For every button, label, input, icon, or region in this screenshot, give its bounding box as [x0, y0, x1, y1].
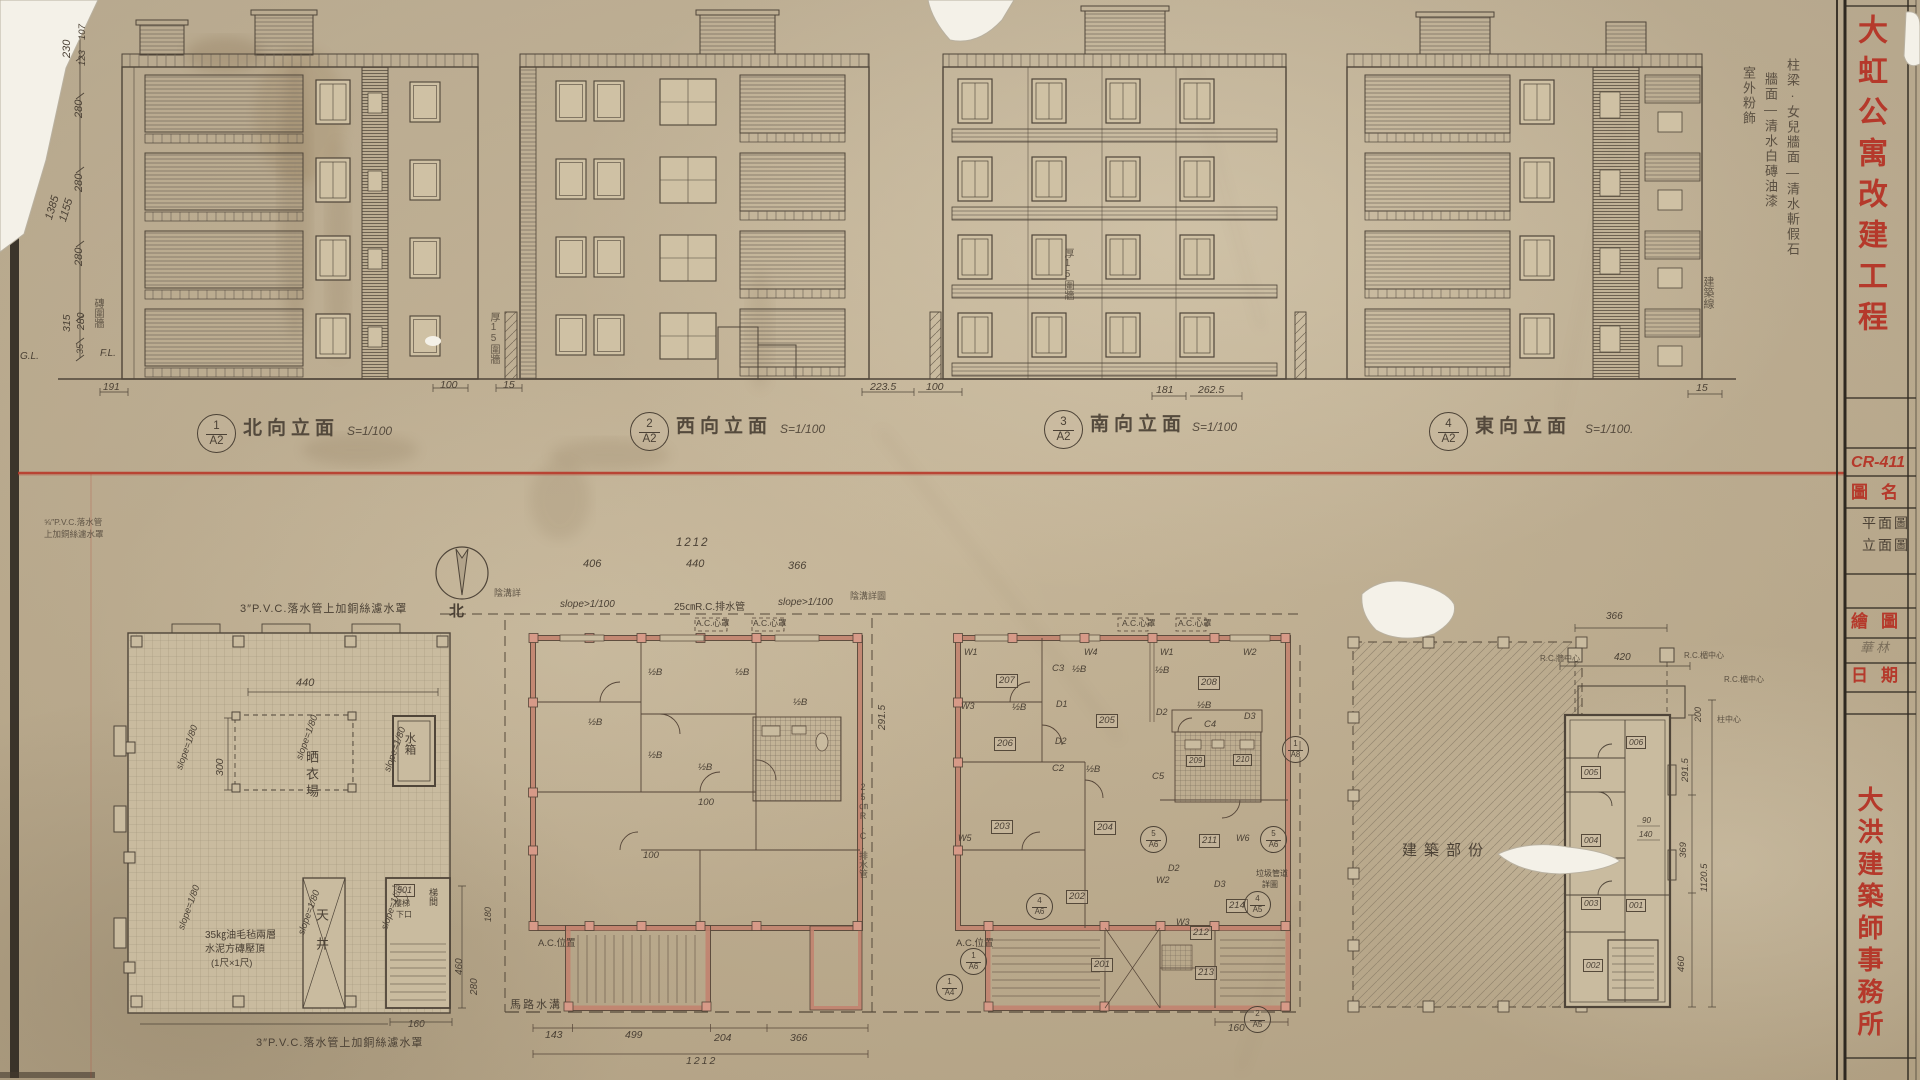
planB-halfb-4: ½B	[793, 698, 807, 708]
roof-pvc-note-top: 3″P.V.C.落水管上加銅絲濾水罩	[240, 604, 407, 615]
section-5A6b-sheet: A6	[1266, 840, 1282, 849]
planE-dim-369: 369	[1679, 842, 1689, 858]
planC-w1-a: W1	[964, 648, 978, 657]
planB-dim-1212: 1212	[676, 538, 710, 550]
roof-dim-160: 160	[408, 1020, 425, 1030]
planE-lintel-center-2: R.C.楣中心	[1724, 676, 1764, 684]
planC-halfb-1: ½B	[1072, 665, 1086, 675]
planE-dim-2915: 291.5	[1681, 758, 1691, 782]
elevation-3-bubble: 3 A2	[1044, 410, 1083, 449]
planE-dim-366: 366	[1606, 612, 1623, 622]
roof-dim-300: 300	[215, 758, 226, 776]
elevation-2-sheet: A2	[639, 432, 659, 445]
dim-123: 123	[78, 50, 88, 66]
brick-wall-note: 磚圍牆	[92, 298, 102, 328]
planB-slope-note-2: slope>1/100	[778, 598, 833, 608]
section-5A6-no: 5	[1151, 830, 1155, 838]
room-003: 003	[1581, 897, 1601, 910]
room-002: 002	[1583, 959, 1603, 972]
planC-halfb-5: ½B	[1086, 765, 1100, 775]
planB-gutter-note: 陰溝詳圖	[850, 592, 886, 601]
planC-ac-hood-1: A.C.心罩	[1122, 619, 1156, 628]
north-arrow	[436, 547, 488, 599]
elevation-east	[1347, 12, 1702, 379]
section-4A6-no: 4	[1037, 897, 1041, 905]
planC-w4: W4	[1084, 648, 1098, 657]
roof-dim-180: 180	[484, 907, 493, 922]
room-005: 005	[1581, 766, 1601, 779]
planC-w6: W6	[1236, 834, 1250, 843]
planB-ac-hood-1: A.C.心罩	[696, 619, 730, 628]
section-4A6-bubble: 4 A6	[1026, 893, 1053, 920]
roof-membrane-note-3: (1尺×1尺)	[211, 959, 252, 969]
planB-dim-204: 204	[714, 1033, 732, 1044]
roof-stairroom-label: 梯間	[428, 888, 437, 906]
planC-d2-b: D2	[1055, 737, 1067, 746]
room-208: 208	[1198, 676, 1220, 690]
section-1A8-sheet: A8	[1288, 750, 1304, 759]
roof-pvc-small-2: 上加銅絲濾水罩	[44, 530, 104, 539]
roof-stair-label-1: 樓梯	[394, 900, 410, 908]
room-206: 206	[994, 737, 1016, 751]
section-4A5-sheet: A5	[1250, 905, 1266, 914]
dim-2235: 223.5	[870, 382, 896, 393]
dim-230: 230	[62, 40, 73, 58]
dim-35: 35	[76, 344, 85, 354]
elevation-4-scale: S=1/100.	[1585, 423, 1633, 435]
finish-note-col2: 牆面—清水白磚油漆	[1764, 72, 1777, 209]
section-2A5-sheet: A5	[1250, 1020, 1266, 1029]
planB-halfb-2: ½B	[735, 668, 749, 678]
elevation-2-bubble: 2 A2	[630, 412, 669, 451]
building-line-note: 建築線	[1702, 276, 1713, 309]
drawing-linework	[0, 0, 1920, 1080]
dim-2625: 262.5	[1198, 385, 1224, 396]
dim-280-2: 280	[74, 174, 85, 192]
roof-membrane-note-1: 35㎏油毛毡兩層	[205, 931, 276, 941]
section-4A5-no: 4	[1255, 895, 1259, 903]
elevation-1-title: 北向立面	[243, 419, 339, 438]
dim-280-1: 280	[74, 100, 85, 118]
section-1A8-bubble: 1 A8	[1282, 736, 1309, 763]
dim-280-4: 280	[76, 312, 87, 330]
room-204: 204	[1094, 821, 1116, 835]
gl-mark: G.L.	[20, 352, 39, 362]
section-1A6-no: 1	[971, 952, 975, 960]
planE-dim-90: 90	[1642, 817, 1651, 825]
planB-dim-499: 499	[625, 1030, 643, 1041]
planB-dim-366: 366	[788, 561, 806, 572]
elevation-north	[122, 10, 478, 379]
room-004: 004	[1581, 834, 1601, 847]
elevation-3-number: 3	[1060, 416, 1066, 428]
room-213: 213	[1195, 966, 1217, 980]
section-1A6-sheet: A6	[966, 962, 982, 971]
planB-halfb-1: ½B	[648, 668, 662, 678]
planC-d2-c: D2	[1168, 864, 1180, 873]
dim-181: 181	[1156, 385, 1174, 396]
planC-w5: W5	[958, 834, 972, 843]
date-label: 日期	[1851, 667, 1911, 684]
wall15-note-1: 厚15圍牆	[488, 312, 498, 364]
planB-halfb-5: ½B	[648, 751, 662, 761]
room-006: 006	[1626, 736, 1646, 749]
plan-end-unit	[1560, 624, 1716, 1007]
roof-pvc-small-1: ⅝″P.V.C.落水管	[44, 518, 102, 527]
planC-garbage-2: 詳圖	[1262, 881, 1278, 889]
dim-100-e1: 100	[440, 380, 458, 391]
planC-c2: C2	[1052, 764, 1064, 774]
section-5A6b-bubble: 5 A6	[1260, 826, 1287, 853]
north-label: 北	[449, 604, 464, 619]
roof-dim-460: 460	[455, 958, 465, 975]
planB-dim-366b: 366	[790, 1033, 808, 1044]
planC-c4: C4	[1204, 720, 1216, 730]
planB-ac-hood-2: A.C.心罩	[753, 619, 787, 628]
planB-gutter-note-s: 陰溝詳	[494, 589, 521, 598]
elevation-1-number: 1	[213, 420, 219, 432]
fl-mark: F.L.	[100, 349, 116, 359]
finish-note-col1: 柱梁·女兒牆面—清水斬假石	[1786, 58, 1799, 257]
room-211: 211	[1199, 834, 1220, 848]
roof-dim-280: 280	[470, 978, 480, 995]
planC-garbage-1: 垃圾管道	[1256, 870, 1288, 878]
finish-note-col3: 室外粉飾	[1742, 66, 1755, 126]
elevation-3-sheet: A2	[1053, 430, 1073, 443]
planB-dim-2915: 291.5	[878, 705, 888, 730]
elevation-3-scale: S=1/100	[1192, 421, 1237, 433]
planC-halfb-2: ½B	[1155, 666, 1169, 676]
roof-plan	[114, 624, 466, 1026]
elevation-2-title: 西向立面	[676, 417, 772, 436]
room-203: 203	[991, 820, 1013, 834]
elevation-4-sheet: A2	[1438, 432, 1458, 445]
elevation-2-number: 2	[646, 418, 652, 430]
section-1A4-bubble: 1 A4	[936, 974, 963, 1001]
planC-d3-b: D3	[1214, 880, 1226, 889]
roof-dim-440: 440	[296, 678, 314, 689]
planC-c3: C3	[1052, 664, 1064, 674]
planC-dim-160: 160	[1228, 1024, 1245, 1034]
planC-d3-a: D3	[1244, 712, 1256, 721]
roof-drying-label: 晒衣場	[305, 750, 318, 801]
roof-tank-label: 水箱	[403, 732, 415, 755]
plan-demolished-portion	[1348, 637, 1587, 1012]
planB-ac-pos: A.C.位置	[538, 939, 575, 949]
planC-halfb-3: ½B	[1197, 701, 1211, 711]
section-5A6-sheet: A6	[1146, 840, 1162, 849]
blueprint-sheet: 大虹公寓改建工程 大洪建築師事務所 CR-411 圖名 平面圖 立面圖 繪圖 華…	[0, 0, 1920, 1080]
elevation-4-number: 4	[1445, 418, 1451, 430]
planE-dim-460: 460	[1677, 956, 1687, 972]
elevation-4-bubble: 4 A2	[1429, 412, 1468, 451]
section-4A5-bubble: 4 A5	[1244, 891, 1271, 918]
planB-dim-100-1: 100	[698, 798, 714, 808]
sheet-number: CR-411	[1849, 455, 1907, 471]
drawing-name-label: 圖名	[1851, 484, 1911, 501]
planB-halfb-3: ½B	[588, 718, 602, 728]
planB-drain-note: 25㎝R.C.排水管	[674, 603, 745, 613]
section-4A6-sheet: A6	[1032, 907, 1048, 916]
drawing-name-line1: 平面圖	[1862, 516, 1910, 530]
room-001: 001	[1626, 899, 1646, 912]
planB-dim-440: 440	[686, 559, 704, 570]
planC-w1-b: W1	[1160, 648, 1174, 657]
planC-w2-b: W2	[1156, 876, 1170, 885]
room-205: 205	[1096, 714, 1118, 728]
room-212: 212	[1190, 926, 1212, 940]
planE-col-center: 柱中心	[1717, 716, 1741, 724]
planC-c5: C5	[1152, 772, 1164, 782]
planB-dim-1212b: 1212	[686, 1056, 717, 1067]
room-210: 210	[1233, 754, 1252, 766]
plan-2f-typical	[529, 618, 869, 1058]
dim-15-e1: 15	[503, 380, 515, 391]
dim-15-e4: 15	[1696, 383, 1708, 394]
wall15-note-2: 厚15圍牆	[1062, 248, 1072, 300]
roof-pvc-note-bottom: 3″P.V.C.落水管上加銅絲濾水罩	[256, 1038, 423, 1049]
planC-w3-b: W3	[1176, 918, 1190, 927]
section-5A6-bubble: 5 A6	[1140, 826, 1167, 853]
room-202: 202	[1066, 890, 1088, 904]
demolished-portion-label: 建築部份	[1402, 843, 1490, 858]
room-207: 207	[996, 674, 1018, 688]
planC-w2-a: W2	[1243, 648, 1257, 657]
planE-dim-11205: 1120.5	[1700, 864, 1710, 892]
elevation-2-scale: S=1/100	[780, 423, 825, 435]
section-2A5-no: 2	[1255, 1010, 1259, 1018]
planE-wall-center: R.C.牆中心	[1540, 655, 1580, 663]
roof-lightwell-label: 天井	[315, 908, 328, 966]
section-1A4-sheet: A4	[942, 988, 958, 997]
dim-191: 191	[103, 383, 120, 393]
roof-membrane-note-2: 水泥方磚壓頂	[205, 945, 265, 955]
planC-d2-a: D2	[1156, 708, 1168, 717]
drawn-by-value: 華林	[1860, 641, 1892, 654]
elevation-1-sheet: A2	[206, 434, 226, 447]
planB-dim-406: 406	[583, 559, 601, 570]
elevation-1-bubble: 1 A2	[197, 414, 236, 453]
dim-315: 315	[62, 314, 73, 332]
drawn-by-label: 繪圖	[1851, 613, 1911, 630]
dim-107: 107	[78, 24, 88, 40]
planC-d1: D1	[1056, 700, 1068, 709]
planB-drain-vert: 25㎝R.C.排水管	[858, 782, 867, 878]
planB-slope-note-1: slope>1/100	[560, 600, 615, 610]
section-1A4-no: 1	[947, 978, 951, 986]
section-1A6-bubble: 1 A6	[960, 948, 987, 975]
drawing-name-line2: 立面圖	[1862, 538, 1910, 552]
planE-dim-200: 200	[1694, 707, 1703, 722]
project-title: 大虹公寓改建工程	[1854, 14, 1884, 342]
dim-100-e3: 100	[926, 382, 944, 393]
section-2A5-bubble: 2 A5	[1244, 1006, 1271, 1033]
planB-road-gutter: 馬路水溝	[510, 1000, 562, 1011]
section-5A6b-no: 5	[1271, 830, 1275, 838]
room-209: 209	[1186, 755, 1205, 767]
roof-stair-label-2: 下口	[396, 911, 412, 919]
planC-w3-a: W3	[961, 702, 975, 711]
elevation-1-scale: S=1/100	[347, 425, 392, 437]
planE-dim-420: 420	[1614, 653, 1631, 663]
section-1A8-no: 1	[1293, 740, 1297, 748]
elevation-3-title: 南向立面	[1090, 415, 1186, 434]
roof-stair-number: 501	[394, 884, 415, 897]
dim-280-3: 280	[74, 248, 85, 266]
elevation-south	[930, 6, 1306, 379]
planE-lintel-center-1: R.C.楣中心	[1684, 652, 1724, 660]
room-201: 201	[1091, 958, 1113, 972]
planC-halfb-4: ½B	[1012, 703, 1026, 713]
firm-name: 大洪建築師事務所	[1856, 786, 1882, 1042]
planB-halfb-6: ½B	[698, 763, 712, 773]
elevation-4-title: 東向立面	[1475, 417, 1571, 436]
elevation-west	[505, 10, 869, 379]
planB-dim-100-2: 100	[643, 851, 659, 861]
planB-dim-143: 143	[545, 1030, 563, 1041]
planC-ac-hood-2: A.C.心罩	[1178, 619, 1212, 628]
planE-dim-140: 140	[1639, 831, 1652, 839]
